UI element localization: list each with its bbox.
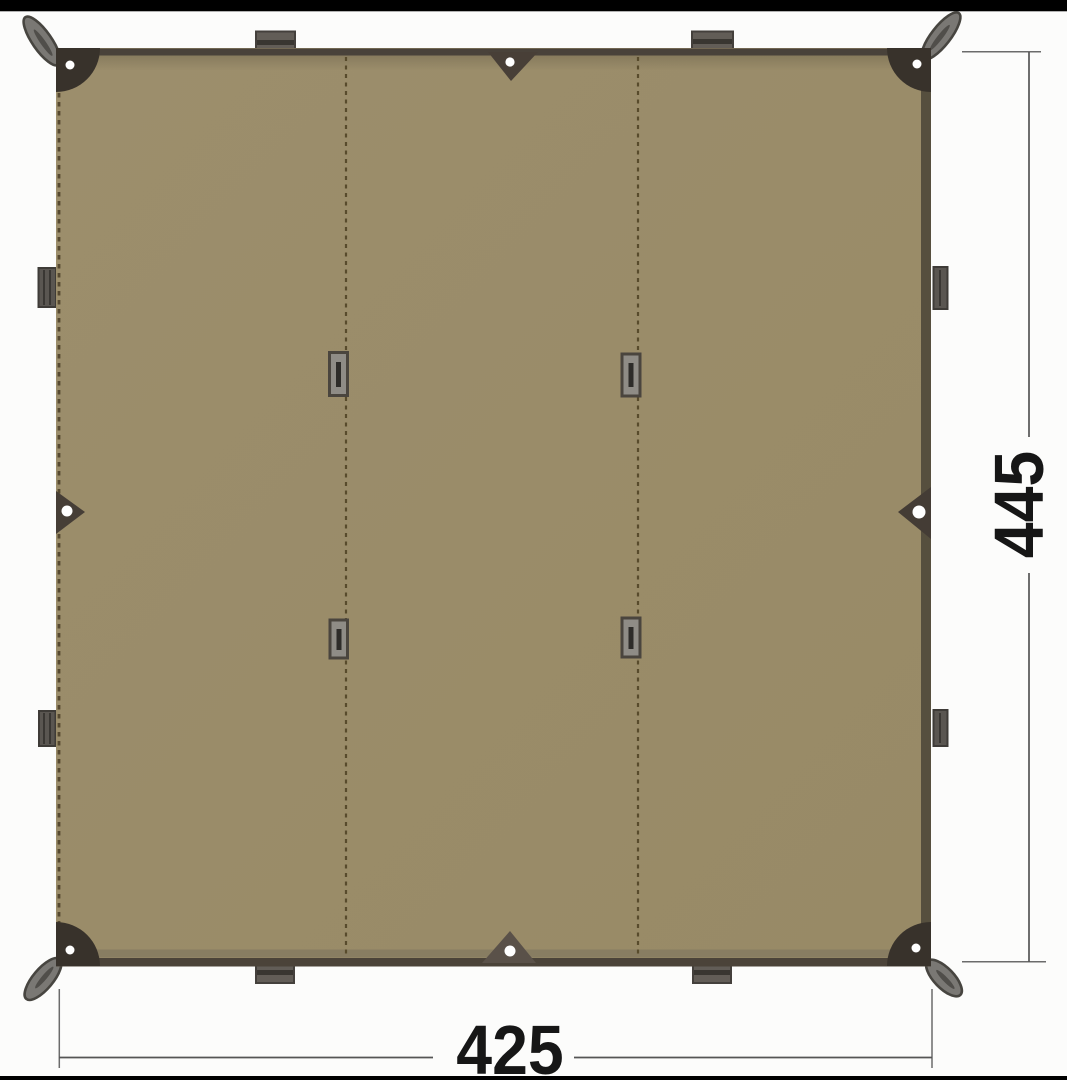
svg-text:445: 445	[981, 451, 1059, 558]
svg-text:425: 425	[456, 1012, 563, 1080]
